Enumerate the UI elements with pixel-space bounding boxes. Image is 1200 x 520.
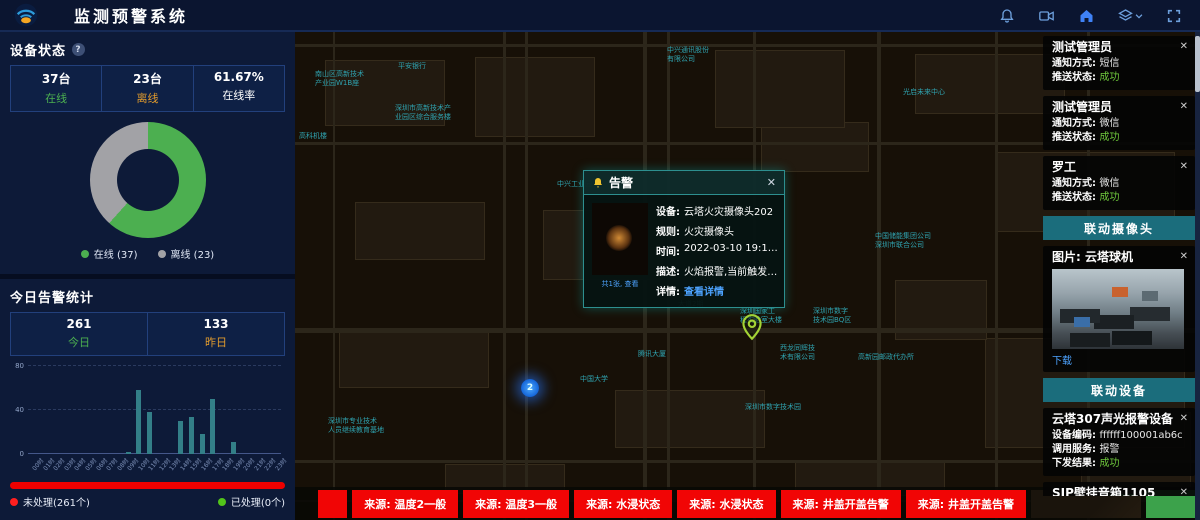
road <box>333 32 335 520</box>
unhandled-progress-bar <box>10 482 285 489</box>
card-title: 图片: 云塔球机 <box>1052 250 1186 265</box>
progress-legend: 未处理(261个) 已处理(0个) <box>10 493 285 513</box>
road <box>525 32 528 520</box>
close-icon[interactable]: ✕ <box>1180 487 1188 496</box>
video-camera-icon[interactable] <box>1037 8 1056 24</box>
card-row: 通知方式: 微信 <box>1052 177 1186 191</box>
card-title: 测试管理员 <box>1052 40 1186 55</box>
linked-devices-header[interactable]: 联动设备 <box>1043 378 1195 402</box>
card-row: 通知方式: 短信 <box>1052 57 1186 71</box>
map-label: 高新园邮政代办所 <box>858 353 914 362</box>
alert-popup-titlebar: 告警 ✕ <box>584 171 784 195</box>
alert-chip[interactable] <box>318 490 347 518</box>
map-label: 西龙同辉技 术有限公司 <box>780 344 815 362</box>
app-header: 监测预警系统 <box>0 0 1200 32</box>
linked-device-card: 云塔307声光报警设备✕设备编码: ffffff100001ab6c调用服务: … <box>1043 408 1195 476</box>
alert-chip[interactable]: 来源: 水浸状态 <box>677 490 775 518</box>
close-icon[interactable]: ✕ <box>1180 41 1188 52</box>
legend-item: 离线 (23) <box>158 246 215 261</box>
device-stat: 61.67%在线率 <box>193 65 285 112</box>
card-title: SIP壁挂音箱1105 <box>1052 486 1186 496</box>
map-label: 深圳市数字技术园 <box>745 403 801 412</box>
device-status-stats: 37台在线23台离线61.67%在线率 <box>10 65 285 112</box>
device-stat: 37台在线 <box>10 65 102 112</box>
device-status-section: 设备状态 ? 37台在线23台离线61.67%在线率 在线 (37)离线 (23… <box>0 32 295 274</box>
linked-device-card: SIP壁挂音箱1105✕设备编码: 1105 <box>1043 482 1195 496</box>
alert-chip[interactable]: 来源: 井盖开盖告警 <box>781 490 901 518</box>
bar <box>210 399 215 454</box>
left-stats-panel: 设备状态 ? 37台在线23台离线61.67%在线率 在线 (37)离线 (23… <box>0 32 295 520</box>
building <box>339 332 489 388</box>
building <box>615 390 765 448</box>
alert-chip[interactable]: 来源: 水浸状态 <box>574 490 672 518</box>
close-icon[interactable]: ✕ <box>1180 161 1188 172</box>
alert-popup: 告警 ✕ 共1张, 查看 设备:云塔火灾摄像头202规则:火灾摄像头时间:202… <box>583 170 785 308</box>
app-title: 监测预警系统 <box>74 3 188 27</box>
layers-icon[interactable] <box>1117 8 1144 24</box>
card-title: 罗工 <box>1052 160 1186 175</box>
notification-card: 测试管理员✕通知方式: 短信推送状态: 成功 <box>1043 36 1195 90</box>
alert-chip[interactable]: 来源: 温度3一般 <box>463 490 569 518</box>
map-label: 中兴通讯股份 有限公司 <box>667 46 709 64</box>
alarm-bell-icon <box>592 177 604 189</box>
card-title: 云塔307声光报警设备 <box>1052 412 1186 427</box>
legend-item: 在线 (37) <box>81 246 138 261</box>
close-icon[interactable]: ✕ <box>1180 101 1188 112</box>
scrollbar-thumb[interactable] <box>1195 36 1200 92</box>
alert-popup-fields: 设备:云塔火灾摄像头202规则:火灾摄像头时间:2022-03-10 19:13… <box>656 203 784 298</box>
today-alerts-stats: 261今日133昨日 <box>10 312 285 356</box>
map-label: 平安银行 <box>398 62 426 71</box>
today-alerts-bar-chart: 8040000时01时02时03时04时05时06时07时08时09时10时11… <box>10 360 285 476</box>
popup-field: 设备:云塔火灾摄像头202 <box>656 203 784 218</box>
bar <box>231 442 236 454</box>
bar <box>178 421 183 454</box>
bell-icon[interactable] <box>999 8 1015 24</box>
bar <box>126 452 131 454</box>
today-alerts-section: 今日告警统计 261今日133昨日 8040000时01时02时03时04时05… <box>0 279 295 520</box>
map-label: 光启未来中心 <box>903 88 945 97</box>
alert-chip[interactable]: 来源: 温度2一般 <box>352 490 458 518</box>
fire-snapshot-image[interactable] <box>592 203 648 275</box>
alert-popup-title: 告警 <box>609 174 633 191</box>
today-alerts-title: 今日告警统计 <box>10 287 94 306</box>
building <box>475 57 595 137</box>
card-row: 设备编码: ffffff100001ab6c <box>1052 429 1186 443</box>
linked-camera-card: 图片: 云塔球机✕下载 <box>1043 246 1195 372</box>
today-stat: 261今日 <box>10 312 148 356</box>
notification-card: 罗工✕通知方式: 微信推送状态: 成功 <box>1043 156 1195 210</box>
map-label: 深圳市专业技术 人员继续教育基地 <box>328 417 384 435</box>
popup-field: 详情:查看详情 <box>656 283 784 298</box>
map-pin-icon[interactable] <box>739 313 765 347</box>
bar <box>189 417 194 454</box>
scrollbar[interactable] <box>1195 32 1200 520</box>
snapshot-caption[interactable]: 共1张, 查看 <box>592 279 648 289</box>
info-icon[interactable]: ? <box>72 43 85 56</box>
download-link[interactable]: 下载 <box>1052 352 1186 367</box>
map-label: 南山区高新技术 产业园W1B座 <box>315 70 364 88</box>
card-row: 推送状态: 成功 <box>1052 191 1186 205</box>
unhandled-dot <box>10 498 18 506</box>
handled-label: 已处理(0个) <box>231 494 285 509</box>
card-row: 推送状态: 成功 <box>1052 71 1186 85</box>
close-icon[interactable]: ✕ <box>1180 251 1188 262</box>
map-label: 深圳市高新技术产 业园区综合服务楼 <box>395 104 451 122</box>
road <box>503 32 506 520</box>
home-icon[interactable] <box>1078 8 1095 24</box>
linked-camera-header[interactable]: 联动摄像头 <box>1043 216 1195 240</box>
header-toolbar <box>999 0 1182 32</box>
app-logo-icon <box>14 3 38 27</box>
map-label: 深圳市数字 技术园BQ区 <box>813 307 851 325</box>
chevron-down-icon <box>1134 11 1144 21</box>
notification-panel: 测试管理员✕通知方式: 短信推送状态: 成功测试管理员✕通知方式: 微信推送状态… <box>1043 36 1195 496</box>
donut-legend: 在线 (37)离线 (23) <box>10 242 285 267</box>
popup-field: 描述:火焰报警,当前触发值为... <box>656 263 784 278</box>
bar <box>136 390 141 454</box>
card-row: 下发结果: 成功 <box>1052 457 1186 471</box>
road <box>877 32 881 520</box>
map-label: 中国储能集团公司 深圳市联合公司 <box>875 232 931 250</box>
building <box>715 50 845 128</box>
device-stat: 23台离线 <box>101 65 193 112</box>
card-title: 测试管理员 <box>1052 100 1186 115</box>
close-icon[interactable]: ✕ <box>767 176 776 189</box>
today-stat: 133昨日 <box>147 312 285 356</box>
card-row: 调用服务: 报警 <box>1052 443 1186 457</box>
bar <box>200 434 205 454</box>
handled-dot <box>218 498 226 506</box>
alert-snapshot[interactable]: 共1张, 查看 <box>592 203 648 298</box>
device-status-donut-chart <box>90 122 206 238</box>
popup-field: 时间:2022-03-10 19:13:07 <box>656 243 784 258</box>
device-status-title: 设备状态 <box>10 40 66 59</box>
map-label: 腾讯大厦 <box>638 350 666 359</box>
map-label: 中国大学 <box>580 375 608 384</box>
card-row: 通知方式: 微信 <box>1052 117 1186 131</box>
card-row: 推送状态: 成功 <box>1052 131 1186 145</box>
map-label: 高科机楼 <box>299 132 327 141</box>
building <box>761 122 869 172</box>
popup-field: 规则:火灾摄像头 <box>656 223 784 238</box>
road <box>995 32 998 520</box>
unhandled-label: 未处理(261个) <box>23 494 90 509</box>
notification-card: 测试管理员✕通知方式: 微信推送状态: 成功 <box>1043 96 1195 150</box>
bar <box>147 412 152 454</box>
monitoring-dashboard: 监测预警系统 <box>0 0 1200 520</box>
alert-chip[interactable]: 来源: 井盖开盖告警 <box>906 490 1026 518</box>
view-details-link[interactable]: 查看详情 <box>684 283 724 298</box>
fullscreen-icon[interactable] <box>1166 8 1182 24</box>
close-icon[interactable]: ✕ <box>1180 413 1188 424</box>
camera-snapshot-image[interactable] <box>1052 269 1184 349</box>
map-cluster-marker[interactable]: 2 <box>521 379 539 397</box>
building <box>355 202 485 260</box>
